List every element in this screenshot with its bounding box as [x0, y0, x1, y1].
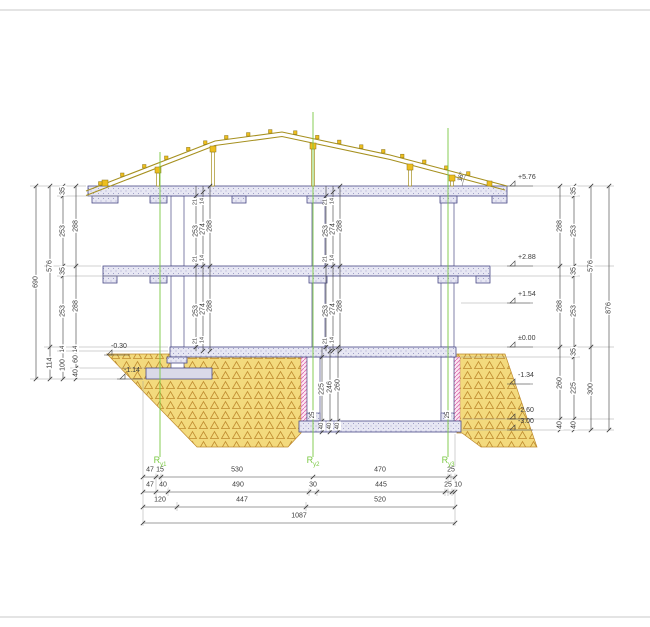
roof-battens	[99, 130, 471, 186]
elevation-label: -3.00	[517, 418, 535, 425]
dim-label: 1087	[290, 513, 308, 520]
dim-label: 288	[73, 219, 80, 233]
dim-label: 35	[571, 347, 578, 357]
dim-label: 21	[193, 255, 199, 263]
elevation-label: -0.30	[110, 343, 128, 350]
elevation-label: -1.34	[517, 372, 535, 379]
elevation-label: +2.88	[517, 254, 537, 261]
drawing-canvas: 6905761143525335253141002882881460402882…	[0, 0, 650, 627]
dim-label: 35	[60, 186, 67, 196]
dim-label: 530	[230, 467, 244, 474]
dim-label: 253	[60, 304, 67, 318]
roof-post	[212, 152, 215, 186]
dim-label: 25	[445, 411, 451, 420]
dim-label: 225	[319, 382, 326, 396]
dim-label: 260	[335, 378, 342, 392]
elevation-label: +5.76	[517, 174, 537, 181]
dim-label: 35	[60, 266, 67, 276]
purlin	[487, 181, 492, 186]
dim-label: 21	[193, 198, 199, 206]
dim-label: 40	[327, 422, 333, 431]
dim-label: 470	[373, 467, 387, 474]
dim-label: 60	[73, 354, 80, 364]
dim-label: 253	[193, 224, 200, 238]
dim-label: 288	[557, 299, 564, 313]
dim-label: 876	[606, 301, 613, 315]
dim-label: 40	[571, 420, 578, 430]
dim-label: 253	[60, 224, 67, 238]
dim-label: 14	[60, 345, 66, 354]
dim-label: 114	[47, 356, 54, 369]
dim-label: 21	[323, 337, 329, 345]
axis-label: Ry3	[441, 456, 456, 468]
dim-label: 288	[207, 299, 214, 313]
dim-label: 288	[207, 219, 214, 233]
dim-label: 35	[571, 186, 578, 196]
dim-label: 260	[557, 376, 564, 390]
dim-label: 288	[337, 299, 344, 313]
elevation-label: -1.14	[123, 367, 141, 374]
dim-label: 253	[323, 224, 330, 238]
dim-label: 10	[453, 482, 463, 489]
elevation-label: -2.60	[517, 407, 535, 414]
elevation-label: ±0.00	[517, 335, 536, 342]
dim-label: 253	[571, 224, 578, 238]
purlin	[210, 146, 216, 152]
dim-label: 40	[319, 422, 325, 431]
dim-label: 47	[145, 482, 155, 489]
dim-label: 21	[323, 255, 329, 263]
dim-label: 520	[373, 497, 387, 504]
dim-label: 40	[335, 422, 341, 431]
roof-post	[157, 173, 160, 186]
dim-label: 274	[200, 302, 207, 316]
purlin	[407, 164, 413, 170]
purlin	[102, 180, 108, 186]
dim-label: 288	[557, 219, 564, 233]
first-floor-slab	[103, 266, 490, 276]
dim-label: 274	[330, 302, 337, 316]
dim-label: 40	[73, 368, 80, 378]
dim-label: 246	[327, 380, 334, 394]
dim-label: 40	[557, 420, 564, 430]
dim-label: 25	[443, 482, 453, 489]
dim-label: 690	[33, 275, 40, 289]
dim-label: 14	[200, 254, 206, 262]
axis-label: Ry1	[153, 456, 168, 468]
dim-label: 490	[231, 482, 245, 489]
dim-label: 120	[153, 497, 167, 504]
dim-label: 14	[330, 254, 336, 262]
dim-label: 447	[235, 497, 249, 504]
dim-label: 576	[588, 259, 595, 273]
dim-label: 576	[47, 259, 54, 273]
elevation-label: +1.54	[517, 291, 537, 298]
dim-label: 14	[330, 197, 336, 205]
basement-insulation-left	[301, 357, 307, 421]
dim-label: 40	[158, 482, 168, 489]
dim-label: 300	[588, 382, 595, 396]
dim-label: 14	[73, 345, 79, 354]
axis-label: Ry2	[306, 456, 321, 468]
dim-label: 253	[323, 304, 330, 318]
roof-post	[409, 170, 412, 186]
dim-label: 14	[200, 336, 206, 344]
dim-label: 14	[200, 197, 206, 205]
dim-label: 288	[73, 299, 80, 313]
dim-label: 25	[310, 411, 316, 420]
dim-label: 30	[308, 482, 318, 489]
dim-label: 21	[193, 337, 199, 345]
dim-label: 225	[571, 381, 578, 395]
dim-label: 35	[571, 266, 578, 276]
dim-label: 21	[323, 198, 329, 206]
dim-label: 445	[374, 482, 388, 489]
dim-label: 274	[330, 222, 337, 236]
dim-label: 253	[193, 304, 200, 318]
dim-label: 274	[200, 222, 207, 236]
roof-post	[451, 181, 454, 186]
basement-insulation-right	[454, 357, 460, 421]
purlin	[449, 175, 455, 181]
dim-label: 253	[571, 304, 578, 318]
dim-label: 100	[60, 358, 67, 372]
dim-label: 288	[337, 219, 344, 233]
top-floor-slab	[88, 186, 507, 196]
dim-label: 14	[330, 336, 336, 344]
